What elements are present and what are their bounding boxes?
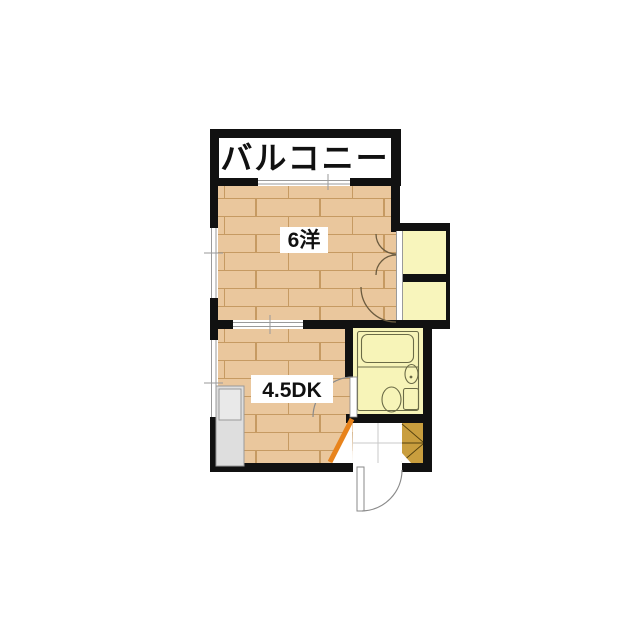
kitchen [216,386,244,466]
dining-kitchen-label: 4.5DK [262,379,322,402]
wall-bath-bottom [353,414,432,423]
bathroom-floor [353,328,423,414]
closet-door-track [396,231,403,320]
wall-closet-top [393,223,450,231]
sliding-door-opening [233,320,303,329]
wall-closet-right [446,223,450,328]
floor-plan: バルコニー [0,0,640,640]
closet-top [403,231,446,274]
balcony-label: バルコニー [220,140,389,176]
wall-closet-divider [400,274,448,282]
sink-drain-icon [410,376,413,379]
entry-door-leaf [357,467,364,511]
balcony-area: バルコニー [210,129,401,186]
bathroom-door-leaf [350,377,357,417]
closet-bottom [403,282,446,320]
wall-bath-left [345,320,353,377]
balcony-window [258,178,350,186]
kitchen-sink [219,389,241,420]
western-room-window [209,228,218,298]
floor-plan-page: バルコニー [0,0,640,640]
western-room-label: 6洋 [288,228,321,252]
wall-bath-right [423,320,432,472]
entry-door-arc [362,470,402,511]
